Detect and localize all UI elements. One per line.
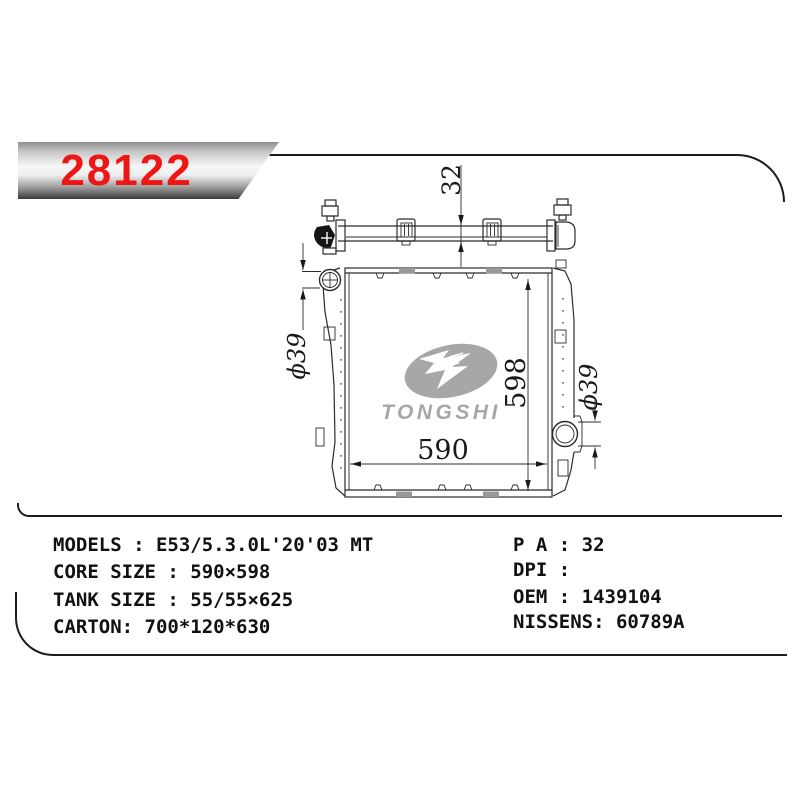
top-view-clamp-right: [483, 219, 501, 245]
dimension-depth: 32: [437, 164, 466, 267]
dim-core-width-label: 590: [417, 435, 469, 466]
spec-line-carton: CARTON: 700*120*630: [53, 618, 270, 637]
dimension-core-height: 598: [501, 279, 532, 491]
outlet-pipe: [553, 422, 578, 447]
registered-mark: ®: [471, 345, 483, 362]
radiator-spec-sheet: 28122: [0, 0, 800, 800]
tongshi-logo: ® TONGSHI: [381, 336, 502, 424]
spec-line-pa: P A : 32: [513, 536, 605, 555]
spec-line-tank-size: TANK SIZE : 55/55×625: [53, 591, 293, 610]
dim-depth-label: 32: [437, 164, 466, 196]
spec-line-core-size: CORE SIZE : 590×598: [53, 563, 270, 582]
top-view-clamp-left: [397, 219, 415, 245]
top-view-right-fitting: [547, 199, 575, 251]
spec-line-dpi: DPI :: [513, 561, 570, 580]
spec-line-oem: OEM : 1439104: [513, 588, 662, 607]
logo-brand-text: TONGSHI: [381, 401, 501, 424]
spec-line-nissens: NISSENS: 60789A: [513, 613, 685, 632]
dim-pipe-right-label: ϕ39: [575, 364, 603, 411]
dim-pipe-left-label: ϕ39: [283, 333, 311, 380]
dimension-pipe-left: ϕ39: [283, 243, 321, 379]
radiator-technical-drawing: 32: [0, 0, 800, 800]
left-tank: [316, 268, 345, 496]
dim-core-height-label: 598: [501, 357, 532, 409]
spec-line-models: MODELS : E53/5.3.0L'20'03 MT: [53, 536, 373, 555]
inlet-pipe: [320, 270, 341, 291]
top-view-left-fitting: [314, 200, 345, 254]
dimension-core-width: 590: [350, 435, 547, 466]
radiator-top-view: 32: [314, 164, 575, 267]
